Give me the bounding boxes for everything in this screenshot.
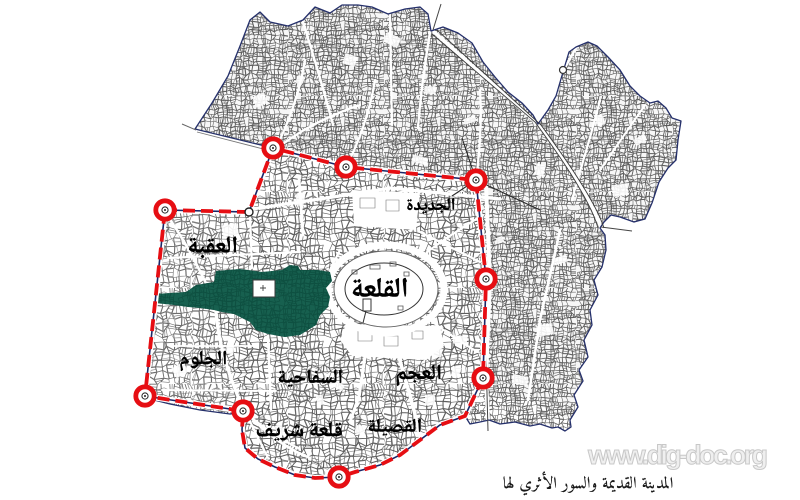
svg-text:www.dig-doc.org: www.dig-doc.org — [587, 440, 768, 470]
